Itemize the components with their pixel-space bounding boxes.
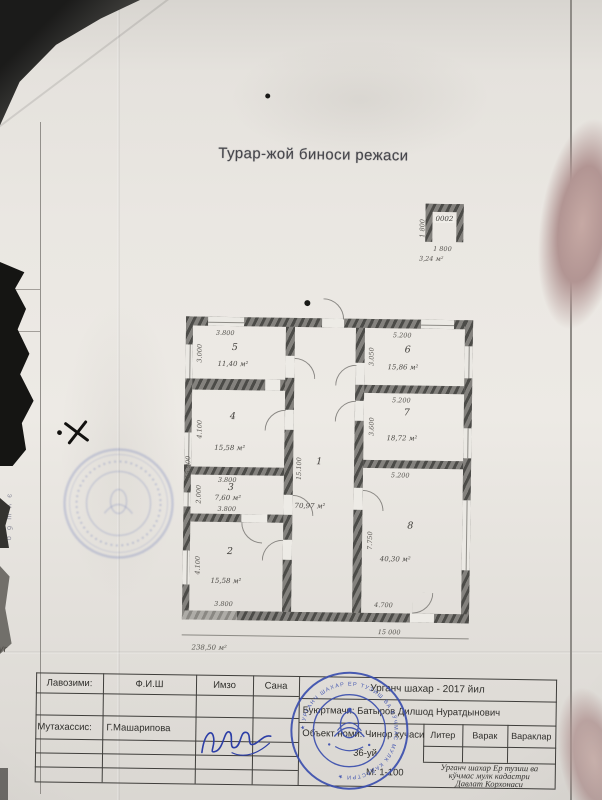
wall (363, 460, 463, 469)
photo-of-document: Турар-жой биноси режаси 0002 1 800 1 800… (0, 0, 602, 800)
dim-label: 5.200 (392, 396, 411, 404)
dim-label: 2.000 (195, 485, 203, 504)
window-gap (185, 344, 192, 378)
door-arc (362, 490, 383, 511)
outbuilding-number: 0002 (434, 215, 454, 223)
room-number: 6 (405, 344, 411, 355)
specialist-name: Г.Машарипова (106, 715, 195, 740)
sheet-header-varaklar: Вараклар (507, 725, 555, 748)
ink-spot (304, 300, 310, 306)
dim-label: 3.050 (367, 347, 375, 366)
dim-label: 7.750 (366, 531, 374, 550)
room-number: 1 (316, 456, 322, 467)
dim-label: 1 800 (433, 245, 452, 253)
door-gap (285, 410, 294, 430)
dimension-line (182, 634, 469, 639)
room-number: 7 (404, 407, 410, 418)
window-gap (182, 550, 189, 584)
room-area: 15,86 м² (387, 363, 418, 371)
window-gap (462, 500, 471, 570)
room-area: 18,72 м² (386, 434, 417, 442)
dim-label: 4.700 (374, 601, 393, 609)
wall (182, 610, 237, 620)
room-area: 40,30 м² (380, 555, 411, 563)
dim-label: 3.800 (217, 505, 236, 513)
signature (195, 716, 281, 771)
room-area: 70,97 м² (294, 502, 325, 510)
window-gap (463, 428, 471, 458)
dim-label: 3.800 (216, 329, 235, 337)
room-number: 2 (227, 546, 233, 557)
page-title: Турар-жой биноси режаси (203, 145, 423, 165)
ink-spot (265, 93, 270, 98)
room-number: 4 (230, 411, 236, 422)
dim-label: 5.200 (393, 331, 412, 339)
door-arc (335, 400, 356, 421)
dim-label: 3.800 (214, 600, 233, 608)
sheet-header-varak: Варак (462, 724, 507, 747)
dim-label: 5.200 (391, 471, 410, 479)
outbuilding-area: 3,24 м² (419, 255, 444, 263)
door-arc (262, 539, 283, 560)
floor-plan: 3.800 5 11,40 м² 3.000 4 15,58 м² 4.100 … (182, 316, 473, 627)
door-gap (322, 318, 344, 327)
window-gap (464, 346, 472, 378)
dim-label: 3.600 (368, 417, 376, 436)
door-gap (265, 379, 280, 390)
dim-label: 15 000 (378, 628, 401, 636)
window-gap (208, 317, 244, 327)
door-gap (285, 356, 294, 378)
wall (191, 466, 284, 475)
door-arc (323, 298, 344, 319)
wall (456, 204, 464, 242)
dim-label: 3.000 (196, 344, 204, 363)
door-arc (335, 364, 356, 385)
room-number: 8 (407, 520, 413, 531)
room-area: 15,58 м² (214, 444, 245, 452)
table-line (35, 766, 298, 771)
wall (237, 611, 469, 623)
torn-paper-bit (0, 768, 8, 800)
round-stamp-faint (58, 443, 180, 565)
specialist-role: Мутахассис: (37, 714, 102, 739)
table-header-name: Ф.И.Ш (103, 673, 196, 694)
room-area: 7,60 м² (215, 494, 242, 502)
room-area: 11,40 м² (217, 360, 248, 368)
dim-label: 15.900 (184, 456, 192, 479)
wall (364, 385, 464, 394)
table-header-position: Лавозими: (36, 672, 103, 693)
org-line: Давлат Корхонаси (425, 779, 554, 790)
door-arc (412, 593, 433, 614)
door-gap (283, 540, 292, 560)
room-number: 3 (228, 482, 234, 493)
door-arc (265, 409, 286, 430)
wall (190, 513, 283, 522)
dim-label: 4.100 (194, 556, 202, 575)
door-gap (283, 495, 292, 515)
sheet-header-liter: Литер (423, 724, 462, 747)
dim-label: 1 800 (418, 219, 426, 238)
pen-mark (55, 419, 95, 448)
door-gap (353, 488, 362, 510)
window-gap (421, 320, 454, 329)
dim-label: 4.100 (195, 420, 203, 439)
outbuilding-detail: 0002 1 800 1 800 3,24 м² (417, 200, 478, 265)
table-header-signature: Имзо (196, 675, 253, 696)
room-number: 5 (232, 342, 238, 353)
door-gap (355, 401, 364, 421)
room-area: 15,58 м² (210, 577, 241, 585)
door-gap (410, 614, 434, 623)
window-gap (184, 492, 191, 506)
document-content: Турар-жой биноси режаси 0002 1 800 1 800… (0, 0, 602, 800)
dim-label: 15.100 (295, 457, 303, 480)
round-stamp: ★ УРГАНЧ ШАХАР ЕР ТУЗИШ ВА КЎЧМАС МУЛК К… (284, 666, 414, 796)
door-arc (294, 358, 315, 379)
door-gap (355, 363, 364, 385)
door-arc (241, 522, 262, 543)
total-area-label: 238,50 м² (191, 643, 226, 651)
